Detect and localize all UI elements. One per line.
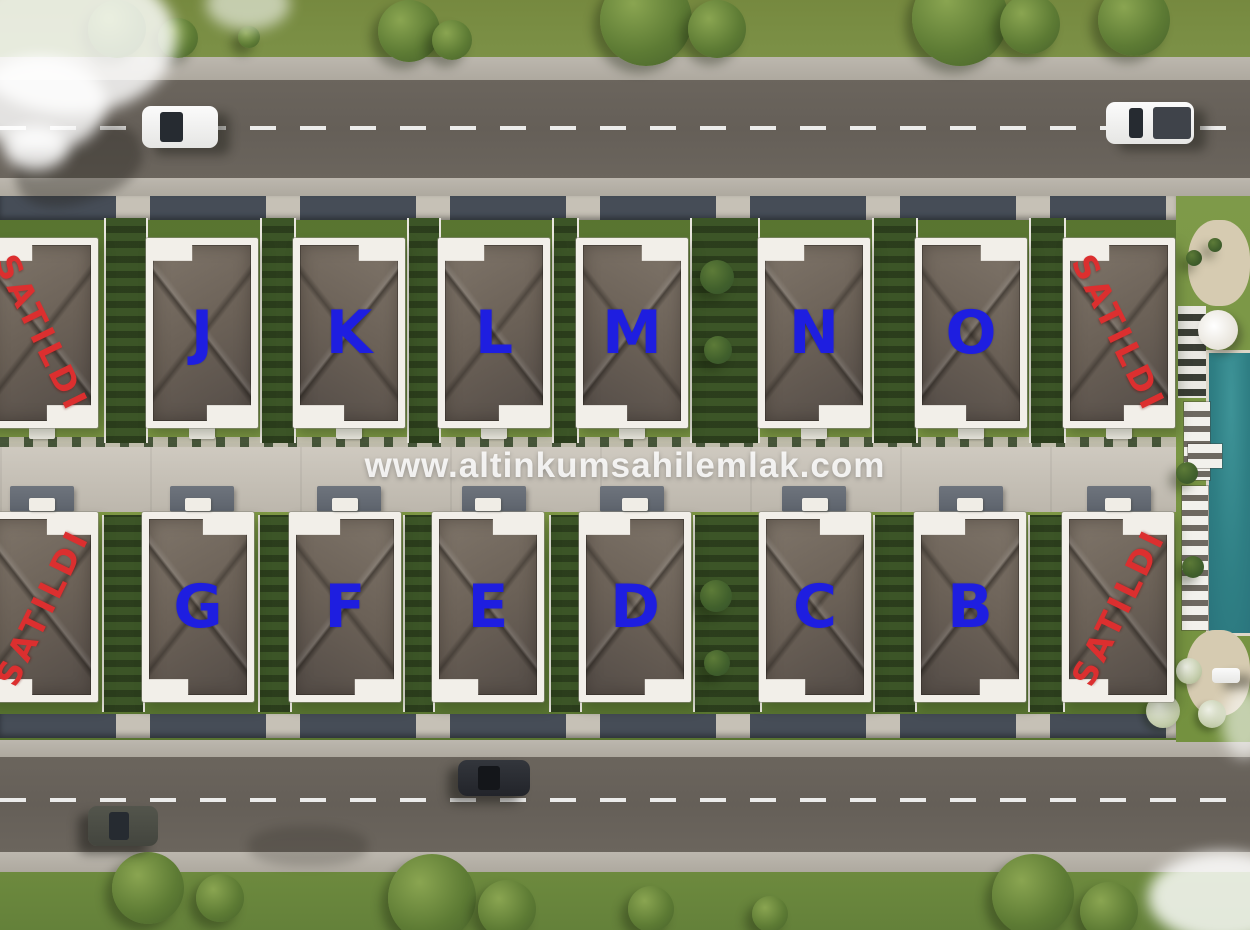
cloud-overlay <box>4 126 68 170</box>
car-windows <box>109 812 129 839</box>
tree <box>700 260 734 294</box>
villa-lot-sold-northeast: SATILDI <box>1063 238 1175 428</box>
sold-text: SATILDI <box>1064 248 1174 418</box>
villa-lot-m: M <box>576 238 688 428</box>
unit-label: M <box>576 238 688 428</box>
entrance-path <box>1105 498 1131 511</box>
dark-suv <box>88 806 158 846</box>
entrance-path <box>622 498 648 511</box>
site-plan-render: SATILDI J K L M N O SATILDI SATILDI G F <box>0 0 1250 930</box>
rear-pergola-strip <box>0 196 1178 220</box>
hedge-divider <box>403 515 435 712</box>
unit-letter: E <box>468 572 509 642</box>
hedge-divider <box>693 515 762 712</box>
tree <box>992 854 1074 930</box>
unit-letter: D <box>610 572 660 642</box>
unit-label: F <box>289 512 401 702</box>
tree <box>378 0 440 62</box>
unit-label: K <box>293 238 405 428</box>
sold-text: SATILDI <box>0 522 97 692</box>
tree <box>112 852 184 924</box>
villa-lot-k: K <box>293 238 405 428</box>
hedge-divider <box>549 515 582 712</box>
unit-letter: C <box>793 572 837 642</box>
villa-lot-g: G <box>142 512 254 702</box>
tree <box>478 880 536 930</box>
unit-letter: K <box>326 298 373 368</box>
unit-label: L <box>438 238 550 428</box>
entrance-path <box>185 498 211 511</box>
unit-label: D <box>579 512 691 702</box>
hedge-divider <box>407 218 441 443</box>
hedge-divider <box>873 515 917 712</box>
car-windows <box>1129 108 1143 138</box>
watermark: www.altinkumsahilemlak.com <box>0 440 1250 492</box>
unit-label: E <box>432 512 544 702</box>
tree <box>752 896 788 930</box>
villa-lot-o: O <box>915 238 1027 428</box>
unit-letter: M <box>602 298 662 368</box>
road-center-line <box>0 798 1250 802</box>
unit-letter: L <box>475 298 513 368</box>
palm-tree <box>1182 556 1204 578</box>
unit-letter: N <box>789 298 839 368</box>
hedge-divider <box>690 218 760 443</box>
bush <box>1208 238 1222 252</box>
villa-lot-n: N <box>758 238 870 428</box>
villa-lot-sold-southeast: SATILDI <box>1062 512 1174 702</box>
entrance-path <box>475 498 501 511</box>
villa-lot-b: B <box>914 512 1026 702</box>
sold-text: SATILDI <box>1063 522 1173 692</box>
sidewalk <box>0 740 1250 757</box>
tree <box>704 650 730 676</box>
hedge-divider <box>258 515 292 712</box>
unit-letter: F <box>325 572 366 642</box>
hedge-divider <box>872 218 918 443</box>
hedge-divider <box>552 218 579 443</box>
unit-label: N <box>758 238 870 428</box>
villa-lot-d: D <box>579 512 691 702</box>
unit-letter: B <box>947 572 993 642</box>
tree <box>628 886 674 930</box>
unit-label: J <box>146 238 258 428</box>
villa-lot-sold-southwest: SATILDI <box>0 512 98 702</box>
unit-letter: J <box>191 298 213 368</box>
villa-lot-c: C <box>759 512 871 702</box>
entrance-path <box>802 498 828 511</box>
unit-label: O <box>915 238 1027 428</box>
entrance-path <box>332 498 358 511</box>
entrance-path <box>29 498 55 511</box>
unit-label: G <box>142 512 254 702</box>
tree <box>700 580 732 612</box>
entrance-path <box>957 498 983 511</box>
tree <box>688 0 746 58</box>
hedge-divider <box>260 218 296 443</box>
car-windows <box>160 112 183 142</box>
sold-text: SATILDI <box>0 248 97 418</box>
unit-label: C <box>759 512 871 702</box>
tree <box>704 336 732 364</box>
sidewalk <box>0 178 1250 196</box>
villa-lot-j: J <box>146 238 258 428</box>
rear-pergola-strip <box>0 714 1178 738</box>
south-road <box>0 757 1250 852</box>
unit-letter: G <box>173 572 222 642</box>
white-pickup-truck <box>1106 102 1194 144</box>
villa-lot-e: E <box>432 512 544 702</box>
white-parked-car <box>1212 668 1240 683</box>
villa-lot-sold-northwest: SATILDI <box>0 238 98 428</box>
tree-shadow <box>248 826 368 866</box>
unit-label: B <box>914 512 1026 702</box>
villa-lot-f: F <box>289 512 401 702</box>
unit-letter: O <box>945 298 996 368</box>
villa-lot-l: L <box>438 238 550 428</box>
tree <box>432 20 472 60</box>
dark-sedan <box>458 760 530 796</box>
white-sedan <box>142 106 218 148</box>
tree <box>196 874 244 922</box>
car-windows <box>478 766 500 790</box>
truck-bed <box>1153 107 1192 139</box>
